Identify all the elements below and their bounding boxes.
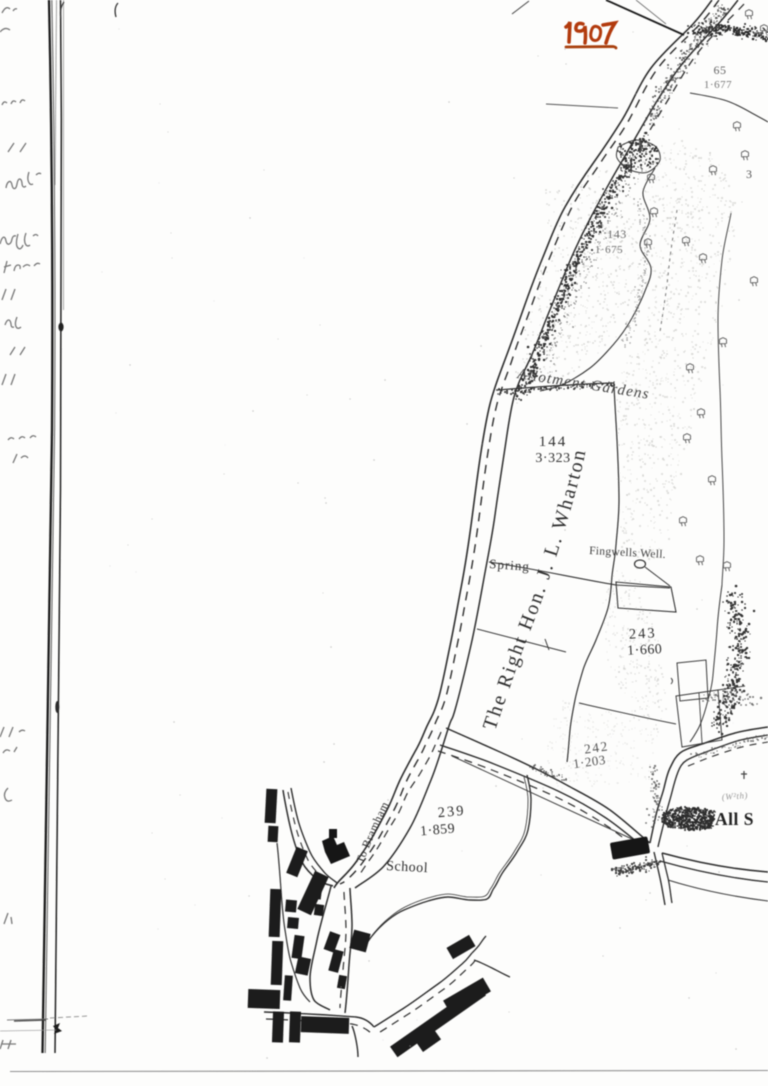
- svg-text:3·323: 3·323: [535, 451, 570, 466]
- svg-text:1·660: 1·660: [627, 642, 663, 659]
- svg-text:1·859: 1·859: [420, 822, 456, 840]
- svg-text:1·677: 1·677: [704, 79, 732, 91]
- svg-text:All S: All S: [715, 809, 754, 829]
- svg-text:(W²th): (W²th): [721, 790, 748, 802]
- svg-text:Spring: Spring: [489, 556, 531, 574]
- svg-text:1·675: 1·675: [595, 244, 623, 256]
- svg-text:3: 3: [746, 167, 753, 181]
- svg-text:144: 144: [539, 434, 568, 450]
- svg-text:65: 65: [714, 63, 727, 77]
- svg-text:239: 239: [437, 803, 466, 821]
- svg-text:243: 243: [629, 625, 658, 642]
- svg-text:143: 143: [607, 227, 627, 241]
- svg-text:School: School: [386, 859, 429, 876]
